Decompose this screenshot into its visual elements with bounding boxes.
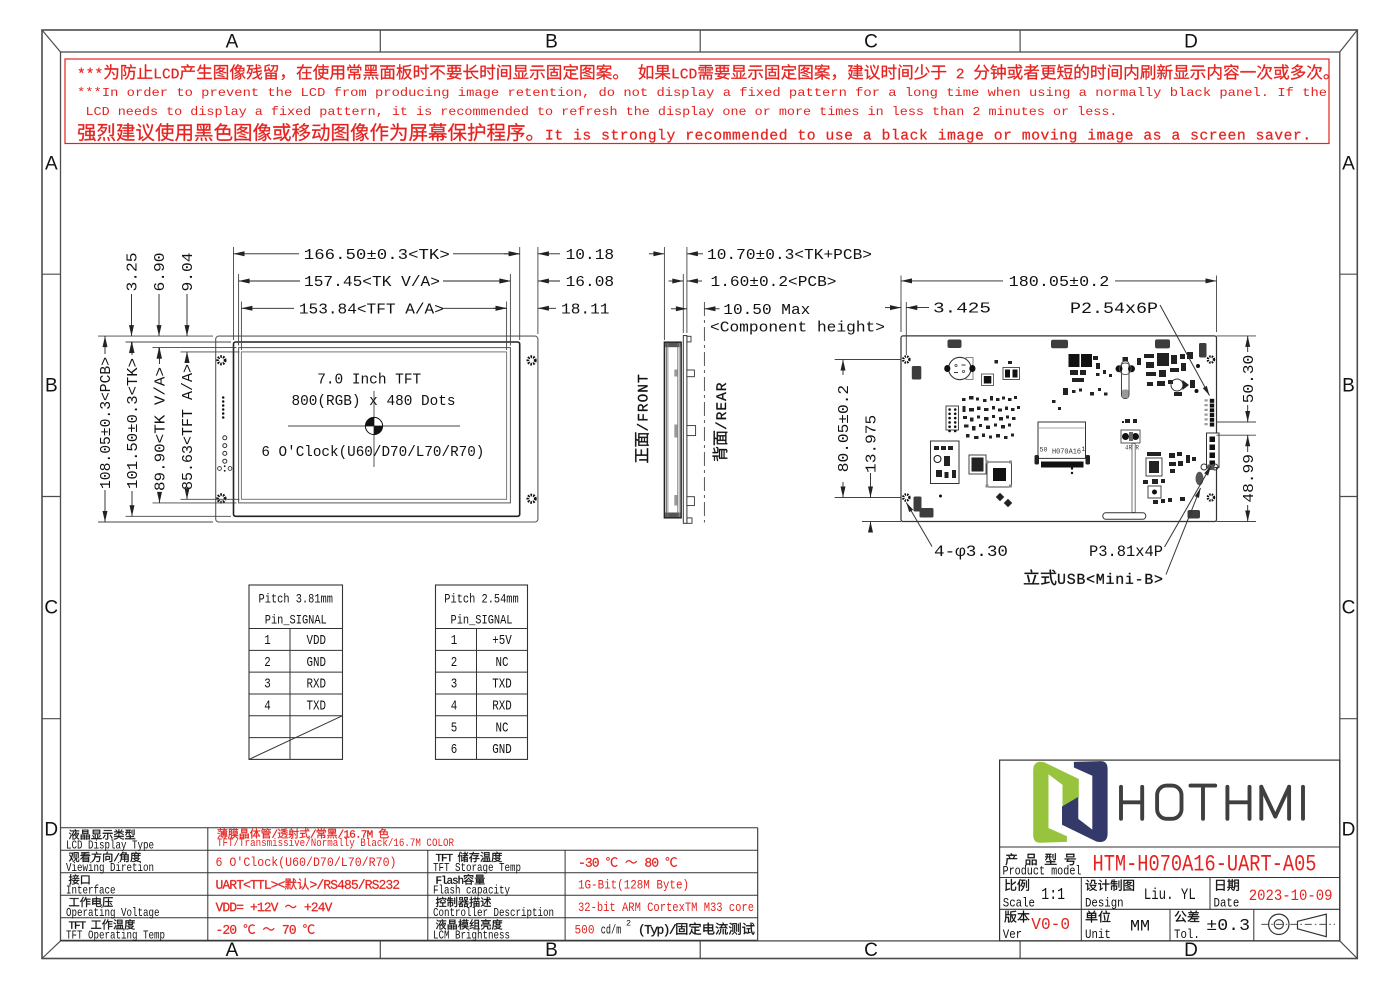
svg-text:1: 1 <box>1082 446 1086 453</box>
svg-text:16.08: 16.08 <box>566 274 615 291</box>
svg-text:Operating Voltage: Operating Voltage <box>66 906 160 920</box>
svg-text:108.05±0.3<PCB>: 108.05±0.3<PCB> <box>98 357 115 489</box>
svg-text:6 O'Clock(U60/D70/L70/R70): 6 O'Clock(U60/D70/L70/R70) <box>261 445 484 461</box>
svg-text:180.05±0.2: 180.05±0.2 <box>1009 274 1110 291</box>
svg-text:2: 2 <box>626 919 631 929</box>
svg-text:Controller Description: Controller Description <box>433 906 554 920</box>
svg-text:101.50±0.3<TK>: 101.50±0.3<TK> <box>125 358 142 489</box>
svg-text:TFT/Transmissive/Normally Blac: TFT/Transmissive/Normally Black/16.7M CO… <box>217 838 454 850</box>
svg-text:B: B <box>1342 376 1355 397</box>
svg-text:Viewing Diretion: Viewing Diretion <box>66 861 154 875</box>
svg-text:D: D <box>1342 820 1356 841</box>
svg-text:Flash capacity: Flash capacity <box>433 883 510 897</box>
svg-text:10.18: 10.18 <box>566 247 615 264</box>
svg-text:166.50±0.3<TK>: 166.50±0.3<TK> <box>304 247 450 264</box>
svg-text:1: 1 <box>451 634 458 649</box>
svg-text:HTM-H070A16-UART-A05: HTM-H070A16-UART-A05 <box>1093 852 1317 878</box>
svg-text:Tol.: Tol. <box>1174 928 1200 942</box>
svg-text:A: A <box>226 32 239 53</box>
svg-text:3: 3 <box>264 678 271 693</box>
svg-text:3: 3 <box>451 678 458 693</box>
svg-text:2: 2 <box>451 656 458 671</box>
svg-text:MM: MM <box>1130 918 1150 936</box>
svg-text:Product model: Product model <box>1003 865 1082 879</box>
svg-text:<Component height>: <Component height> <box>710 320 885 337</box>
svg-text:***In order to prevent the LCD: ***In order to prevent the LCD from prod… <box>77 86 1327 100</box>
svg-text:C: C <box>44 598 58 619</box>
svg-text:Pin_SIGNAL: Pin_SIGNAL <box>265 612 327 627</box>
svg-text:2: 2 <box>264 656 271 671</box>
svg-text:H070A16: H070A16 <box>1052 449 1081 457</box>
svg-text:13.975: 13.975 <box>864 415 881 473</box>
svg-text:cd/m: cd/m <box>601 923 622 938</box>
svg-text:7.0 Inch TFT: 7.0 Inch TFT <box>317 373 421 389</box>
svg-text:80.05±0.2: 80.05±0.2 <box>836 385 853 472</box>
svg-text:800(RGB) x 480 Dots: 800(RGB) x 480 Dots <box>292 394 456 410</box>
svg-text:Pitch 2.54mm: Pitch 2.54mm <box>444 591 519 606</box>
svg-text:LCD needs to display a fixed p: LCD needs to display a fixed pattern, it… <box>86 105 1118 119</box>
svg-text:B: B <box>545 940 558 961</box>
svg-text:85.63<TFT A/A>: 85.63<TFT A/A> <box>180 364 197 490</box>
svg-text:TXD: TXD <box>492 678 512 693</box>
svg-text:±0.3: ±0.3 <box>1206 917 1250 936</box>
svg-text:4: 4 <box>264 699 271 714</box>
svg-text:50: 50 <box>1040 447 1048 454</box>
svg-text:6 O'Clock(U60/D70/L70/R70): 6 O'Clock(U60/D70/L70/R70) <box>216 855 397 870</box>
svg-text:C: C <box>1342 598 1356 619</box>
svg-text:LCD Display Type: LCD Display Type <box>66 838 154 852</box>
svg-text:VDD: VDD <box>307 634 327 649</box>
svg-text:32-bit ARM CortexTM M33 core: 32-bit ARM CortexTM M33 core <box>578 900 754 915</box>
svg-text:3.25: 3.25 <box>125 253 142 292</box>
svg-text:B: B <box>545 32 558 53</box>
svg-text:Pin_SIGNAL: Pin_SIGNAL <box>451 612 513 627</box>
svg-text:5: 5 <box>451 721 458 736</box>
svg-text:A: A <box>45 154 58 175</box>
svg-text:6: 6 <box>451 743 458 758</box>
svg-text:GND: GND <box>307 656 327 671</box>
svg-text:C: C <box>864 940 878 961</box>
svg-text:Interface: Interface <box>66 883 116 897</box>
svg-text:Scale: Scale <box>1003 897 1035 911</box>
svg-text:1G-Bit(128M Byte): 1G-Bit(128M Byte) <box>578 878 689 893</box>
svg-text:C: C <box>864 32 878 53</box>
svg-text:B: B <box>45 376 58 397</box>
svg-text:3.425: 3.425 <box>933 301 991 318</box>
svg-text:6.90: 6.90 <box>152 253 169 292</box>
svg-text:D: D <box>1184 32 1198 53</box>
svg-text:1: 1 <box>264 634 271 649</box>
svg-text:A: A <box>1342 154 1355 175</box>
svg-text:GND: GND <box>492 743 512 758</box>
svg-text:1.60±0.2<PCB>: 1.60±0.2<PCB> <box>711 274 837 291</box>
svg-text:NC: NC <box>496 656 509 671</box>
svg-text:P2.54x6P: P2.54x6P <box>1070 300 1158 318</box>
svg-text:D: D <box>1184 940 1198 961</box>
svg-text:TFT Storage Temp: TFT Storage Temp <box>433 861 521 875</box>
svg-text:157.45<TK V/A>: 157.45<TK V/A> <box>304 274 440 291</box>
svg-text:500: 500 <box>575 923 595 938</box>
svg-text:NC: NC <box>496 721 509 736</box>
svg-text:A: A <box>226 940 239 961</box>
svg-text:10.50 Max: 10.50 Max <box>723 302 810 319</box>
svg-text:48.99: 48.99 <box>1241 454 1258 503</box>
svg-text:4-φ3.30: 4-φ3.30 <box>934 543 1008 561</box>
svg-text:D: D <box>44 820 58 841</box>
svg-text:RXD: RXD <box>307 678 327 693</box>
svg-text:4: 4 <box>451 699 458 714</box>
svg-text:Ver: Ver <box>1003 928 1022 942</box>
svg-text:Date: Date <box>1214 897 1240 911</box>
svg-text:Design: Design <box>1085 897 1124 911</box>
svg-text:P3.81x4P: P3.81x4P <box>1089 543 1163 561</box>
svg-text:50.30: 50.30 <box>1241 355 1258 404</box>
svg-text:Unit: Unit <box>1085 928 1111 942</box>
svg-text:TXD: TXD <box>307 699 327 714</box>
svg-text:9.04: 9.04 <box>180 253 197 292</box>
svg-text:153.84<TFT A/A>: 153.84<TFT A/A> <box>299 301 444 318</box>
svg-text:V0-0: V0-0 <box>1031 915 1070 934</box>
svg-text:18.11: 18.11 <box>561 301 610 318</box>
svg-text:1:1: 1:1 <box>1041 886 1065 905</box>
svg-text:RXD: RXD <box>492 699 512 714</box>
svg-text:Liu. YL: Liu. YL <box>1144 886 1196 904</box>
svg-text:2023-10-09: 2023-10-09 <box>1249 887 1333 905</box>
svg-text:Pitch 3.81mm: Pitch 3.81mm <box>259 591 334 606</box>
svg-text:LCM Brightness: LCM Brightness <box>433 928 510 942</box>
svg-text:TFT Operating Temp: TFT Operating Temp <box>66 928 165 942</box>
svg-text:+5V: +5V <box>492 634 512 649</box>
svg-text:10.70±0.3<TK+PCB>: 10.70±0.3<TK+PCB> <box>707 247 872 264</box>
svg-text:89.90<TK V/A>: 89.90<TK V/A> <box>153 367 170 491</box>
